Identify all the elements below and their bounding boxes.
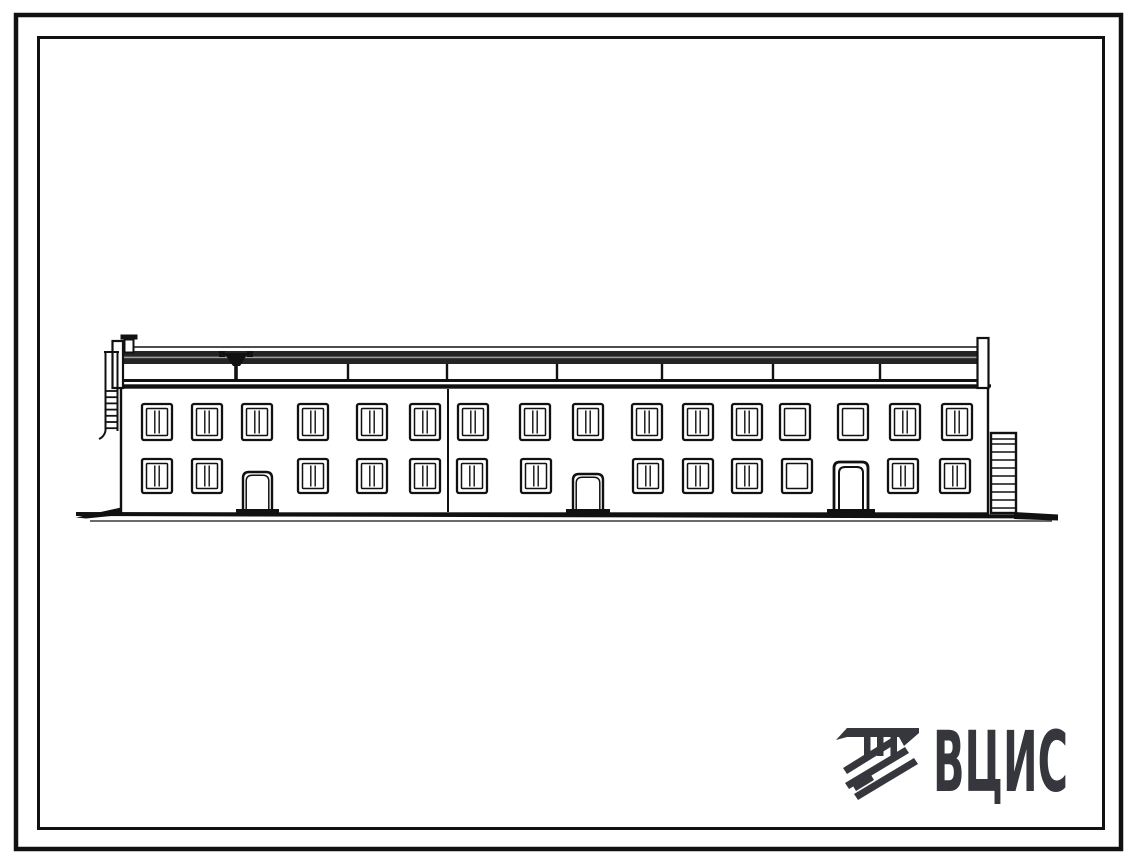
building-elevation bbox=[76, 335, 1058, 522]
upper-window bbox=[458, 404, 488, 440]
lower-window bbox=[888, 459, 918, 493]
upper-window bbox=[890, 404, 920, 440]
elevation-drawing-canvas: ВЦИС bbox=[0, 0, 1134, 863]
upper-window bbox=[683, 404, 713, 440]
upper-window bbox=[780, 404, 810, 440]
upper-window bbox=[942, 404, 972, 440]
door-threshold bbox=[566, 509, 610, 515]
roof-parapet bbox=[113, 335, 992, 389]
lower-window bbox=[732, 459, 762, 493]
parapet-end-right bbox=[978, 338, 989, 388]
vcis-logo: ВЦИС bbox=[836, 713, 1068, 811]
entrance-door bbox=[236, 472, 279, 515]
side-steps-annex bbox=[991, 433, 1016, 513]
lower-window bbox=[940, 459, 970, 493]
upper-window bbox=[520, 404, 550, 440]
door-threshold bbox=[236, 509, 279, 515]
upper-window bbox=[573, 404, 603, 440]
lower-window bbox=[633, 459, 663, 493]
lower-window bbox=[142, 459, 172, 493]
lower-window bbox=[357, 459, 387, 493]
upper-window bbox=[142, 404, 172, 440]
fascia-panel-joints bbox=[348, 364, 880, 380]
upper-window bbox=[838, 404, 868, 440]
lower-window bbox=[521, 459, 551, 493]
lower-window bbox=[457, 459, 487, 493]
entrance-door bbox=[566, 474, 610, 515]
lower-window bbox=[683, 459, 713, 493]
gutter-funnel bbox=[219, 351, 253, 380]
lower-window bbox=[782, 459, 812, 493]
upper-window bbox=[357, 404, 387, 440]
upper-window bbox=[242, 404, 272, 440]
upper-window bbox=[732, 404, 762, 440]
upper-window bbox=[192, 404, 222, 440]
upper-window bbox=[632, 404, 662, 440]
entrance-door bbox=[827, 462, 875, 516]
door-threshold bbox=[827, 509, 875, 516]
lower-window bbox=[192, 459, 222, 493]
vcis-logo-emblem-icon bbox=[836, 728, 919, 800]
lower-window bbox=[410, 459, 440, 493]
lower-window bbox=[298, 459, 328, 493]
vcis-logo-text: ВЦИС bbox=[933, 713, 1068, 811]
drawing-sheet: ВЦИС bbox=[0, 0, 1134, 863]
upper-window bbox=[298, 404, 328, 440]
upper-window bbox=[410, 404, 440, 440]
